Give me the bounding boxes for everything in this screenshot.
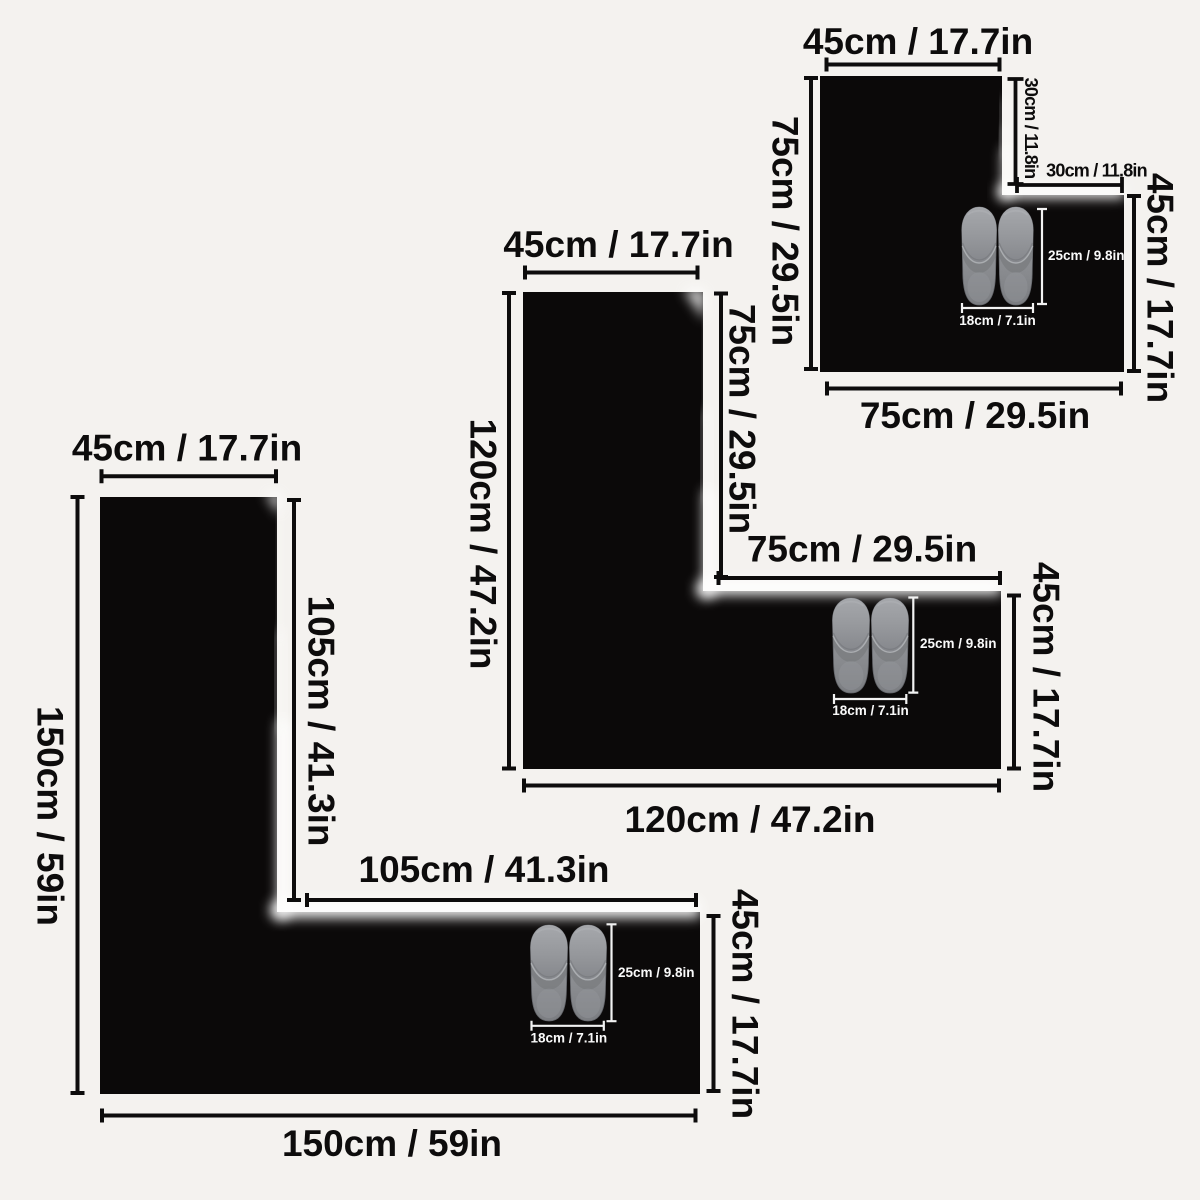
svg-text:75cm / 29.5in: 75cm / 29.5in [722,304,763,534]
svg-text:105cm / 41.3in: 105cm / 41.3in [301,596,342,847]
svg-text:30cm / 11.8in: 30cm / 11.8in [1046,161,1147,181]
svg-text:30cm / 11.8in: 30cm / 11.8in [1021,78,1041,179]
svg-text:120cm / 47.2in: 120cm / 47.2in [463,419,504,670]
svg-text:18cm / 7.1in: 18cm / 7.1in [531,1031,608,1046]
svg-text:18cm / 7.1in: 18cm / 7.1in [832,703,909,718]
svg-text:45cm / 17.7in: 45cm / 17.7in [72,428,302,469]
svg-text:25cm / 9.8in: 25cm / 9.8in [618,965,695,980]
svg-text:45cm / 17.7in: 45cm / 17.7in [1140,173,1181,403]
svg-text:45cm / 17.7in: 45cm / 17.7in [503,224,733,265]
svg-text:150cm / 59in: 150cm / 59in [30,706,71,926]
svg-text:18cm / 7.1in: 18cm / 7.1in [959,313,1036,328]
svg-text:75cm / 29.5in: 75cm / 29.5in [747,529,977,570]
svg-text:75cm / 29.5in: 75cm / 29.5in [765,116,806,346]
svg-text:150cm / 59in: 150cm / 59in [282,1123,502,1164]
svg-text:45cm / 17.7in: 45cm / 17.7in [1026,562,1067,792]
svg-text:45cm / 17.7in: 45cm / 17.7in [803,21,1033,62]
svg-text:45cm / 17.7in: 45cm / 17.7in [725,889,766,1119]
svg-text:105cm / 41.3in: 105cm / 41.3in [359,849,610,890]
svg-text:75cm / 29.5in: 75cm / 29.5in [860,395,1090,436]
svg-text:120cm / 47.2in: 120cm / 47.2in [625,799,876,840]
svg-text:25cm / 9.8in: 25cm / 9.8in [920,636,997,651]
svg-text:25cm / 9.8in: 25cm / 9.8in [1048,248,1125,263]
